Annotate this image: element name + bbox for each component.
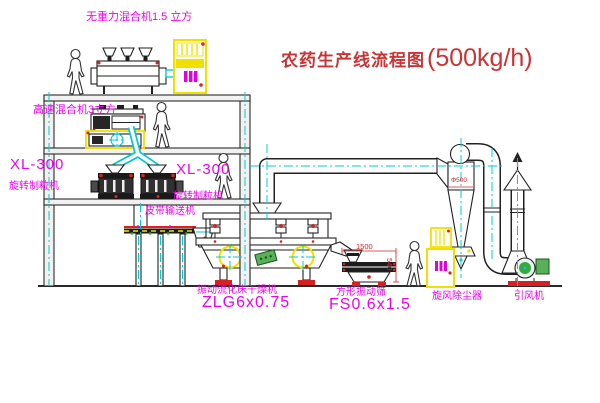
worker-figure-sieve [406,242,423,287]
granulator-funnel-left [106,165,124,173]
exhaust-duct [253,166,437,217]
belt-conveyor [124,225,196,235]
sieve-length-dim: 1500 [356,243,373,251]
roof-mixer-label: 无重力混合机1.5 立方 [86,12,192,23]
control-cabinet-mixer [174,40,206,93]
belt-conveyor-label: 皮带输送机 [145,207,195,217]
right-granulator-name-label: 旋转制粒机 [173,192,223,202]
floor2-mixer-label: 高速混合机3立方 [33,105,116,116]
control-cabinet-dust [427,228,454,287]
sieve-model-label: FS0.6x1.5 [329,297,411,313]
diagram-title-capacity: (500kg/h) [427,44,533,73]
left-granulator-model-label: XL-300 [10,157,64,172]
diagram-canvas: 农药生产线流程图 (500kg/h) 无重力混合机1.5 立方 高速混合机3立方… [0,0,600,403]
cyclone-label: 旋风除尘器 [432,292,482,302]
cyclone-diameter-dim: Φ500 [451,178,467,185]
diagram-title: 农药生产线流程图 (500kg/h) [281,44,533,73]
sieve-height-dim: 540 [386,258,394,271]
dryer-model-label: ZLG6x0.75 [202,295,290,311]
fluid-bed-dryer [196,213,352,285]
worker-figure-floor2 [153,103,170,148]
y-chute [114,127,157,167]
right-granulator-model-label: XL-300 [176,162,230,177]
worker-figure-roof [67,50,84,95]
gravity-free-mixer [91,48,183,94]
left-granulator-name-label: 旋转制粒机 [9,182,59,192]
fan-label: 引风机 [514,292,544,302]
diagram-title-text: 农药生产线流程图 [281,46,425,71]
rotary-granulator-left [91,173,134,199]
granulator-funnel-right [148,165,166,173]
